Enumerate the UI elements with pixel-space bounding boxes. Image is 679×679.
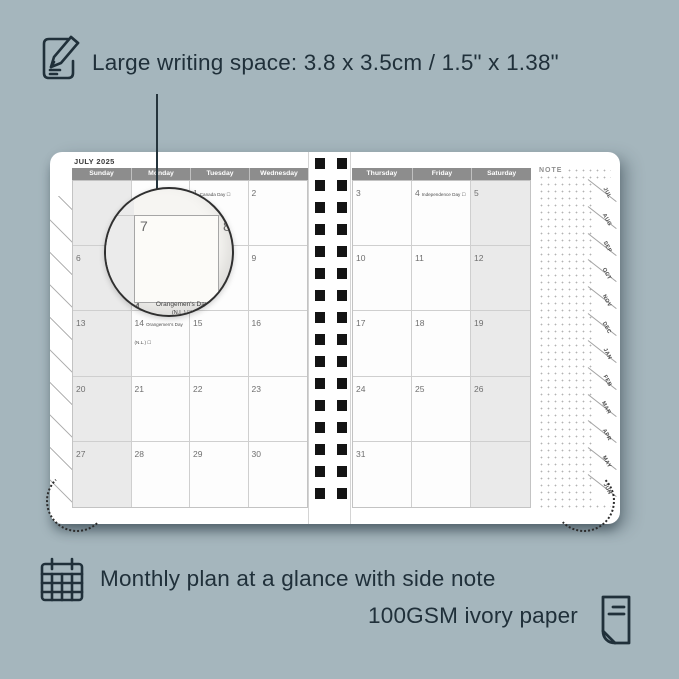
page-edge-line [350,152,351,524]
month-tab-label: APR [601,428,612,442]
month-tab: OCT [592,260,619,287]
day-number: 28 [135,449,144,459]
day-number: 29 [193,449,202,459]
left-weekday-header: Sunday Monday Tuesday Wednesday [72,168,308,180]
day-number: 4 [415,188,420,198]
calendar-cell: 4Independence Day ☐ [412,181,471,246]
dotted-corner-arc [46,470,108,532]
calendar-cell: 31 [353,442,412,507]
right-month-grid: 3 4Independence Day ☐ 5 10 11 12 17 18 1… [352,180,531,508]
day-number: 15 [193,318,202,328]
day-number: 23 [252,384,261,394]
calendar-cell: 26 [471,377,530,442]
month-tab-label: JAN [601,348,612,362]
magnified-holiday-label: Orangemen's Day [140,301,224,308]
month-tab-label: OCT [601,267,612,281]
day-number: 14 [135,318,144,328]
day-number: 11 [415,253,424,263]
month-tab: MAY [592,448,619,475]
day-number: 10 [356,253,365,263]
calendar-cell [471,442,530,507]
day-number: 13 [76,318,85,328]
calendar-cell: 17 [353,311,412,376]
day-number: 16 [252,318,261,328]
holiday-label: Canada Day ☐ [200,192,231,197]
day-number: 21 [135,384,144,394]
day-number: 3 [356,188,361,198]
calendar-cell: 15 [190,311,249,376]
month-tab-label: MAY [601,455,612,469]
magnified-day-number: 14 [126,300,140,315]
weekday-label: Saturday [471,168,531,180]
callout-line [156,94,158,191]
weekday-label: Thursday [352,168,412,180]
holiday-label: Independence Day ☐ [422,192,466,197]
calendar-cell: 28 [132,442,191,507]
calendar-cell [412,442,471,507]
day-number: 26 [474,384,483,394]
month-tab: JAN [592,341,619,368]
day-number: 19 [474,318,483,328]
spiral-binding [337,158,347,510]
day-number: 18 [415,318,424,328]
day-number: 24 [356,384,365,394]
calendar-cell: 3 [353,181,412,246]
calendar-cell: 24 [353,377,412,442]
calendar-cell: 22 [190,377,249,442]
calendar-cell: 5 [471,181,530,246]
calendar-cell: 16 [249,311,308,376]
calendar-cell: 29 [190,442,249,507]
day-number: 12 [474,253,483,263]
spiral-binding [315,158,325,510]
calendar-cell: 30 [249,442,308,507]
month-tab: NOV [592,287,619,314]
month-tab: FEB [592,368,619,395]
document-icon [596,592,636,648]
weekday-label: Wednesday [249,168,308,180]
magnifier-circle: 7 8 14 Orangemen's Day (N.L.) ☐ [104,187,234,317]
calendar-cell: 25 [412,377,471,442]
day-number: 6 [76,253,81,263]
day-number: 27 [76,449,85,459]
weekday-label: Tuesday [190,168,249,180]
month-tab-label: NOV [601,294,612,308]
month-tab-label: MAR [600,401,612,416]
calendar-cell: 10 [353,246,412,311]
month-tab: MAR [592,395,619,422]
day-number: 9 [252,253,257,263]
day-number: 31 [356,449,365,459]
weekday-label: Sunday [72,168,131,180]
month-tab: AUG [592,207,619,234]
day-number: 17 [356,318,365,328]
calendar-grid-icon [38,555,86,603]
dotted-corner-arc [553,470,615,532]
month-tab-rail: JUL AUG SEP OCT NOV DEC JAN FEB MAR APR … [592,180,619,502]
month-tab-label: AUG [600,213,612,228]
calendar-cell: 9 [249,246,308,311]
calendar-cell: 18 [412,311,471,376]
month-tab: JUL [592,180,619,207]
month-tab: APR [592,421,619,448]
calendar-cell: 14Orangemen's Day (N.L.) ☐ [132,311,191,376]
month-tab: DEC [592,314,619,341]
calendar-cell: 2 [249,181,308,246]
month-tab-label: SEP [601,240,612,254]
calendar-cell: 20 [73,377,132,442]
calendar-cell: 21 [132,377,191,442]
page-edge-line [308,152,309,524]
bottom-caption-line1: Monthly plan at a glance with side note [100,566,496,592]
month-tab-label: FEB [601,374,612,388]
right-weekday-header: Thursday Friday Saturday [352,168,531,180]
top-caption: Large writing space: 3.8 x 3.5cm / 1.5" … [92,50,559,76]
calendar-cell: 19 [471,311,530,376]
magnified-day-number: 7 [140,218,148,234]
day-number: 20 [76,384,85,394]
weekday-label: Friday [412,168,472,180]
weekday-label: Monday [131,168,190,180]
product-image: Large writing space: 3.8 x 3.5cm / 1.5" … [0,0,679,679]
day-number: 22 [193,384,202,394]
notepad-pencil-icon [38,31,84,83]
note-label: NOTE [539,167,564,174]
calendar-cell: 13 [73,311,132,376]
magnified-day-number: 8 [223,218,231,234]
bottom-caption-line2: 100GSM ivory paper [100,603,578,629]
month-tab-label: JUL [602,187,613,200]
left-page-edge-hatch [50,196,73,512]
calendar-cell: 12 [471,246,530,311]
magnified-weekend-shade [106,189,134,315]
day-number: 30 [252,449,261,459]
month-tab: SEP [592,234,619,261]
day-number: 2 [252,188,257,198]
month-tab-label: DEC [601,320,612,334]
calendar-cell: 11 [412,246,471,311]
day-number: 5 [474,188,479,198]
calendar-cell: 23 [249,377,308,442]
month-title: JULY 2025 [74,157,115,166]
day-number: 25 [415,384,424,394]
